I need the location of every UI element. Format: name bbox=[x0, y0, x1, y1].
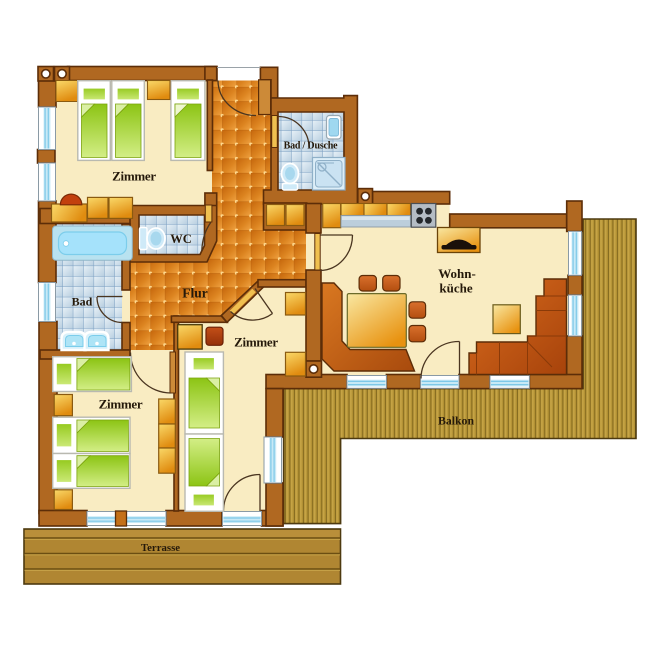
svg-text:Zimmer: Zimmer bbox=[234, 335, 278, 350]
svg-text:Terrasse: Terrasse bbox=[141, 542, 180, 554]
svg-text:WC: WC bbox=[170, 232, 192, 246]
svg-text:Wohn-: Wohn- bbox=[438, 266, 476, 281]
svg-text:Zimmer: Zimmer bbox=[99, 397, 143, 412]
svg-text:Flur: Flur bbox=[182, 286, 208, 301]
svg-text:Bad: Bad bbox=[72, 295, 93, 309]
svg-text:Balkon: Balkon bbox=[438, 414, 475, 428]
svg-text:Bad / Dusche: Bad / Dusche bbox=[284, 141, 338, 152]
svg-text:Zimmer: Zimmer bbox=[112, 169, 156, 184]
svg-text:küche: küche bbox=[439, 281, 472, 296]
